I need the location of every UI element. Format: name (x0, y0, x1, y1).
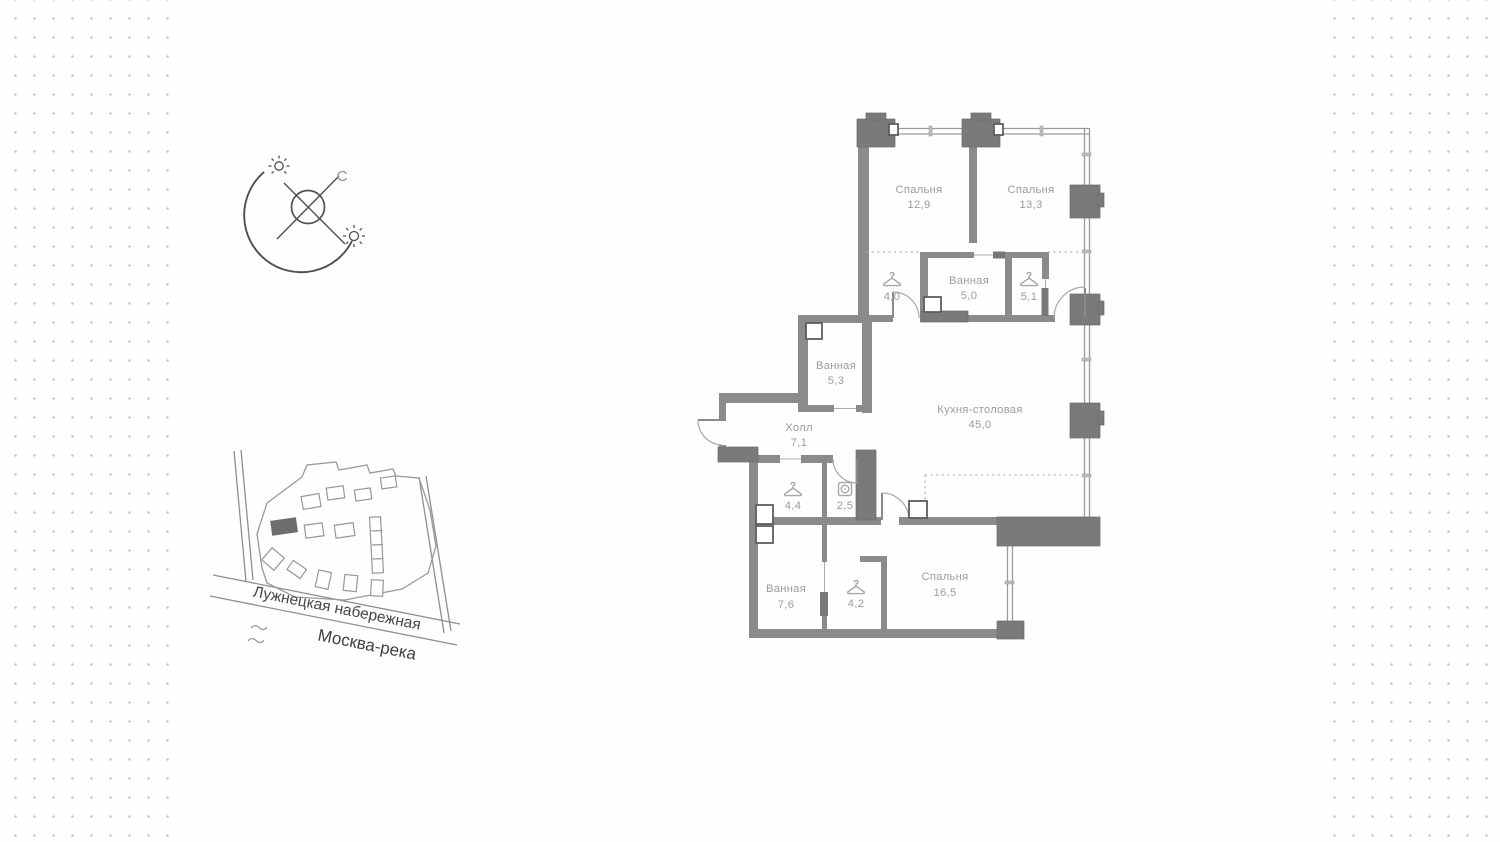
room-area: 7,1 (791, 437, 807, 449)
room-name: Холл (785, 422, 813, 434)
room-area: 45,0 (969, 419, 992, 431)
hanger-icon (1021, 272, 1038, 285)
room-area: 4,4 (785, 500, 801, 512)
room-area: 13,3 (1020, 199, 1043, 211)
sunset-icon (269, 156, 290, 174)
room-wardrobe-1: 4,0 (884, 272, 901, 303)
room-bathroom-3: Ванная 7,6 (766, 583, 806, 611)
room-kitchen: Кухня-столовая 45,0 (937, 404, 1022, 431)
site-map: Лужнецкая набережная Москва-река (210, 450, 460, 664)
neighbor-buildings (262, 476, 397, 596)
room-area: 5,0 (961, 290, 977, 302)
room-wardrobe-2: 5,1 (1021, 272, 1038, 303)
north-label: С (337, 168, 348, 185)
floorplan-page: С (0, 0, 1500, 842)
plan-drawing: С (0, 0, 1500, 842)
floor-plan: Спальня 12,9 Спальня 13,3 4,0 Ванная 5 (698, 113, 1104, 639)
room-area: 5,3 (828, 375, 844, 387)
room-name: Ванная (766, 583, 806, 595)
room-labels: Спальня 12,9 Спальня 13,3 4,0 Ванная 5 (766, 184, 1055, 611)
shafts (756, 124, 1003, 543)
room-bedroom-1: Спальня 12,9 (895, 184, 942, 211)
room-name: Спальня (921, 571, 968, 583)
washer-icon (839, 483, 852, 496)
room-laundry: 2,5 (837, 483, 853, 513)
room-area: 2,5 (837, 500, 853, 512)
room-name: Спальня (1007, 184, 1054, 196)
room-name: Спальня (895, 184, 942, 196)
room-bedroom-3: Спальня 16,5 (921, 571, 968, 599)
room-name: Кухня-столовая (937, 404, 1022, 416)
room-wardrobe-3: 4,4 (785, 482, 802, 512)
compass-rose: С (244, 156, 365, 273)
hanger-icon (848, 580, 865, 593)
room-name: Ванная (949, 275, 989, 287)
room-wardrobe-4: 4,2 (848, 580, 865, 610)
river-label: Москва-река (316, 626, 418, 664)
room-area: 4,2 (848, 598, 864, 610)
room-hall: Холл 7,1 (785, 422, 813, 449)
room-bathroom-1: Ванная 5,0 (949, 275, 989, 302)
room-bathroom-2: Ванная 5,3 (816, 360, 856, 387)
room-name: Ванная (816, 360, 856, 372)
room-bedroom-2: Спальня 13,3 (1007, 184, 1054, 211)
room-area: 16,5 (934, 587, 957, 599)
river-waves-icon (248, 626, 267, 643)
room-area: 7,6 (778, 599, 794, 611)
room-area: 5,1 (1021, 291, 1037, 303)
hanger-icon (785, 482, 802, 495)
sun-icon (343, 225, 365, 247)
room-area: 4,0 (884, 291, 900, 303)
room-area: 12,9 (908, 199, 931, 211)
hanger-icon (884, 272, 901, 285)
street-label: Лужнецкая набережная (252, 584, 423, 634)
subject-building (270, 517, 298, 535)
walls (719, 133, 1055, 638)
